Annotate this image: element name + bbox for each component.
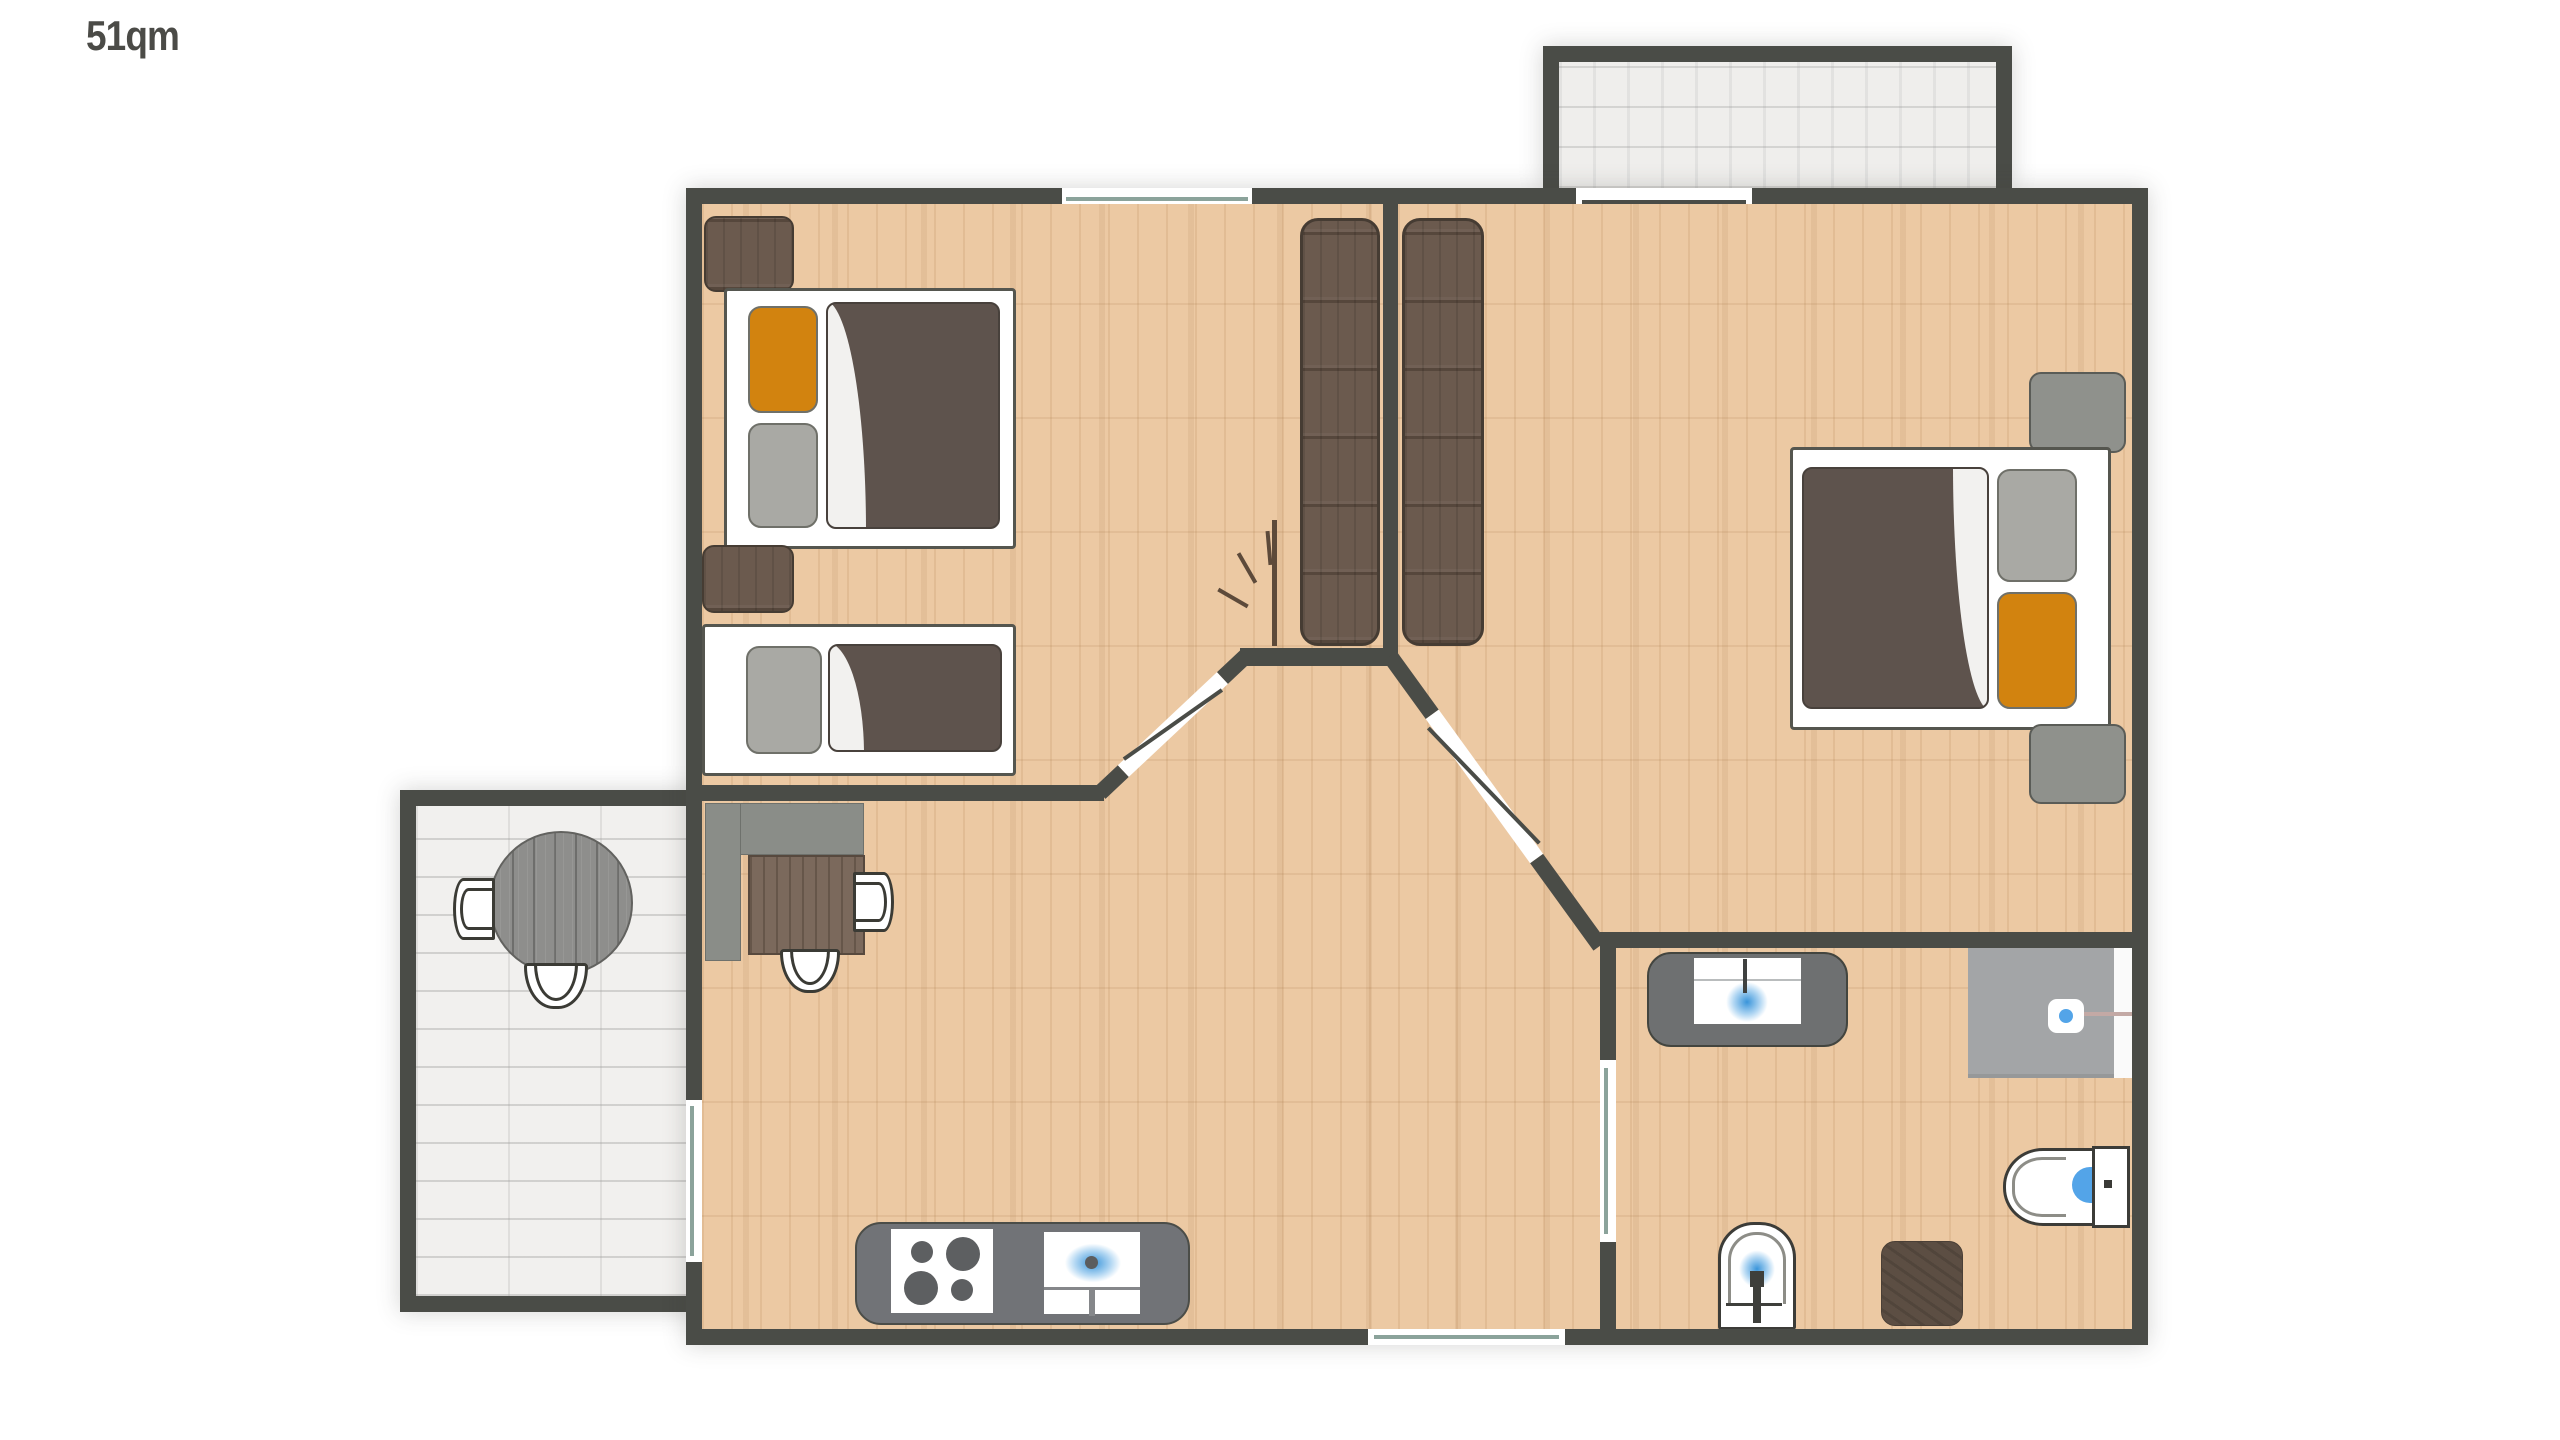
balcony-round-table [489, 831, 633, 975]
desk-counter-side [705, 803, 741, 961]
pillow-gray-single-bed [746, 646, 822, 754]
balcony-door-line [690, 1106, 694, 1256]
terrace-chair-left [453, 878, 495, 940]
kitchen-faucet-handle [1089, 1290, 1095, 1316]
porch-wall-top [1543, 46, 2012, 62]
kitchen-faucet [1085, 1256, 1098, 1269]
toilet-flush-button [2104, 1180, 2112, 1188]
vanity-water-glow [1718, 974, 1776, 1030]
shower-head-nozzle [2059, 1009, 2073, 1023]
stove-burner-small [911, 1241, 933, 1263]
desk-table [748, 855, 865, 955]
entrance-door-line [1582, 200, 1746, 204]
nightstand-right-bottom [2029, 724, 2126, 804]
nightstand-middle-left [702, 545, 794, 613]
blanket-single-bed [828, 644, 1002, 752]
blanket-left-bed [826, 302, 1000, 529]
wardrobe-right [1402, 218, 1484, 646]
nightstand-right-top [2029, 372, 2126, 453]
pillow-gray-right-bed [1997, 469, 2077, 582]
toilet-water [2072, 1167, 2092, 1203]
wash-basin-faucet [1750, 1271, 1764, 1287]
door-swing-line [1272, 520, 1277, 646]
stove-burner-small [951, 1279, 973, 1301]
window-bottom-glass-line [1374, 1335, 1559, 1339]
stove-burner-large [904, 1271, 938, 1305]
vanity-faucet [1743, 959, 1747, 993]
porch-wall-right [1996, 46, 2012, 188]
balcony-wall-bottom [400, 1296, 702, 1312]
terrace-chair-bottom-arc [534, 964, 578, 1001]
outer-wall-top [686, 188, 2148, 204]
wardrobe-left [1300, 218, 1380, 646]
bathroom-sliding-door [1600, 1060, 1616, 1242]
stove-burner-large [946, 1237, 980, 1271]
balcony-wall-left [400, 790, 416, 1312]
stove [891, 1229, 993, 1313]
window-top-glass-line [1066, 197, 1248, 201]
shower-arm [2082, 1012, 2132, 1016]
blanket-fold [828, 644, 864, 752]
desk-chair-right-arc [854, 882, 887, 922]
blanket-right-bed [1802, 467, 1989, 709]
bedroom-left-bottom-wall [686, 785, 1104, 801]
bath-mat [1881, 1241, 1963, 1326]
blanket-fold [826, 302, 866, 529]
vanity-counter-line [1694, 979, 1801, 981]
bathroom-door-line [1604, 1068, 1608, 1234]
bathroom-top-wall [1600, 932, 2132, 948]
blanket-fold [1953, 467, 1989, 709]
pillow-gray-left-bed [748, 423, 818, 528]
porch-wall-left [1543, 46, 1559, 188]
balcony-door-opening [686, 1100, 702, 1262]
terrace-chair-left-arc [460, 888, 494, 930]
toilet-bowl-inner-arc [2012, 1157, 2066, 1217]
hall-divider-wall [1383, 204, 1398, 666]
bathroom-left-wall-upper [1600, 932, 1616, 1060]
floor-plan-canvas: 51qm [0, 0, 2560, 1440]
outer-wall-right [2132, 188, 2148, 1345]
entrance-porch-floor [1559, 62, 1996, 188]
wash-basin-crossbar [1726, 1303, 1782, 1306]
pillow-orange-right-bed [1997, 592, 2077, 709]
toilet-bowl [2003, 1148, 2097, 1226]
balcony-wall-top [400, 790, 702, 806]
window-top [1062, 188, 1252, 204]
wardrobe-bottom-wall [1240, 648, 1398, 666]
desk-chair-right [853, 872, 894, 932]
bathroom-left-wall-lower [1600, 1242, 1616, 1345]
pillow-orange-left-bed [748, 306, 818, 413]
wash-basin [1718, 1222, 1796, 1330]
nightstand-top-left [704, 216, 794, 292]
desk-chair-bottom-arc [790, 950, 830, 985]
area-label: 51qm [86, 12, 179, 60]
